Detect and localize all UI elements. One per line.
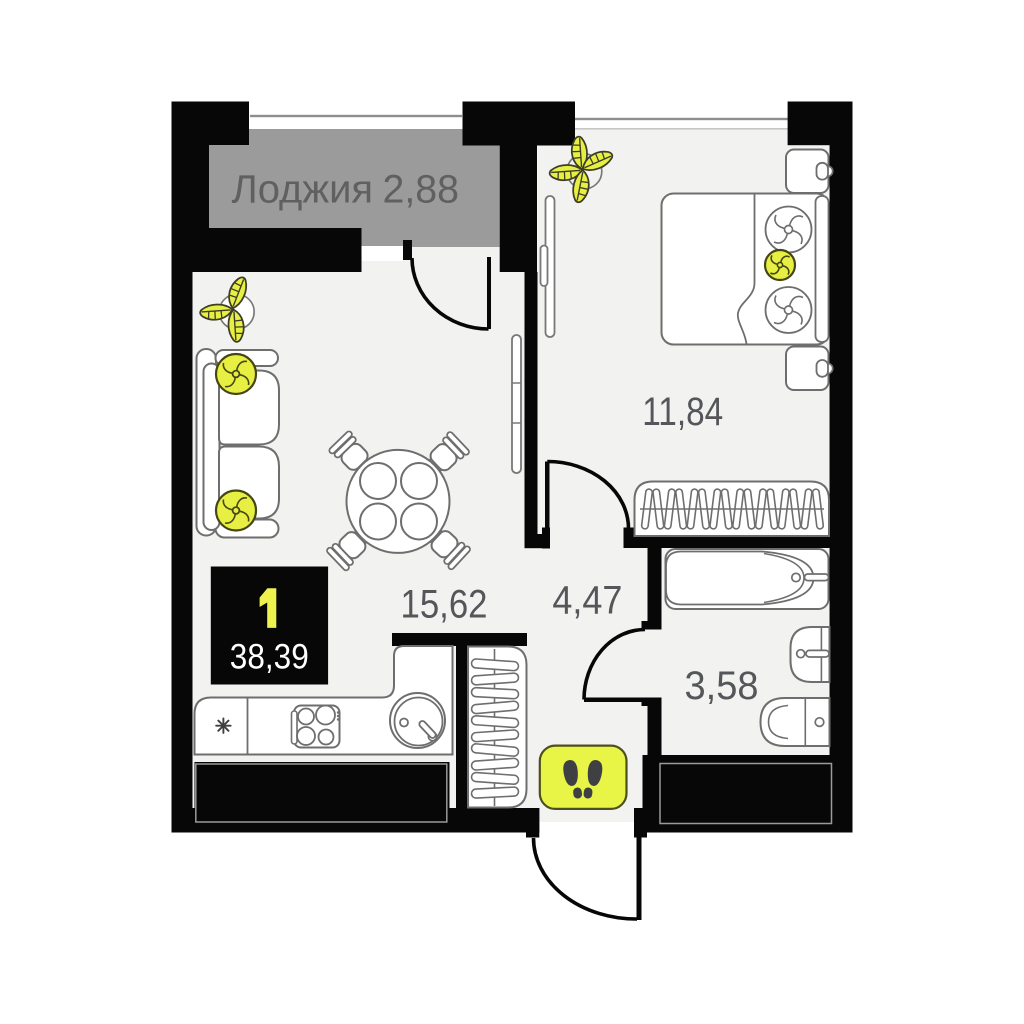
svg-text:38,39: 38,39 [230,638,309,677]
svg-text:3,58: 3,58 [685,664,759,708]
svg-text:4,47: 4,47 [552,579,622,623]
svg-text:Лоджия: Лоджия [232,168,374,212]
svg-text:11,84: 11,84 [642,390,723,434]
svg-text:2,88: 2,88 [383,168,460,212]
svg-text:15,62: 15,62 [401,583,488,627]
